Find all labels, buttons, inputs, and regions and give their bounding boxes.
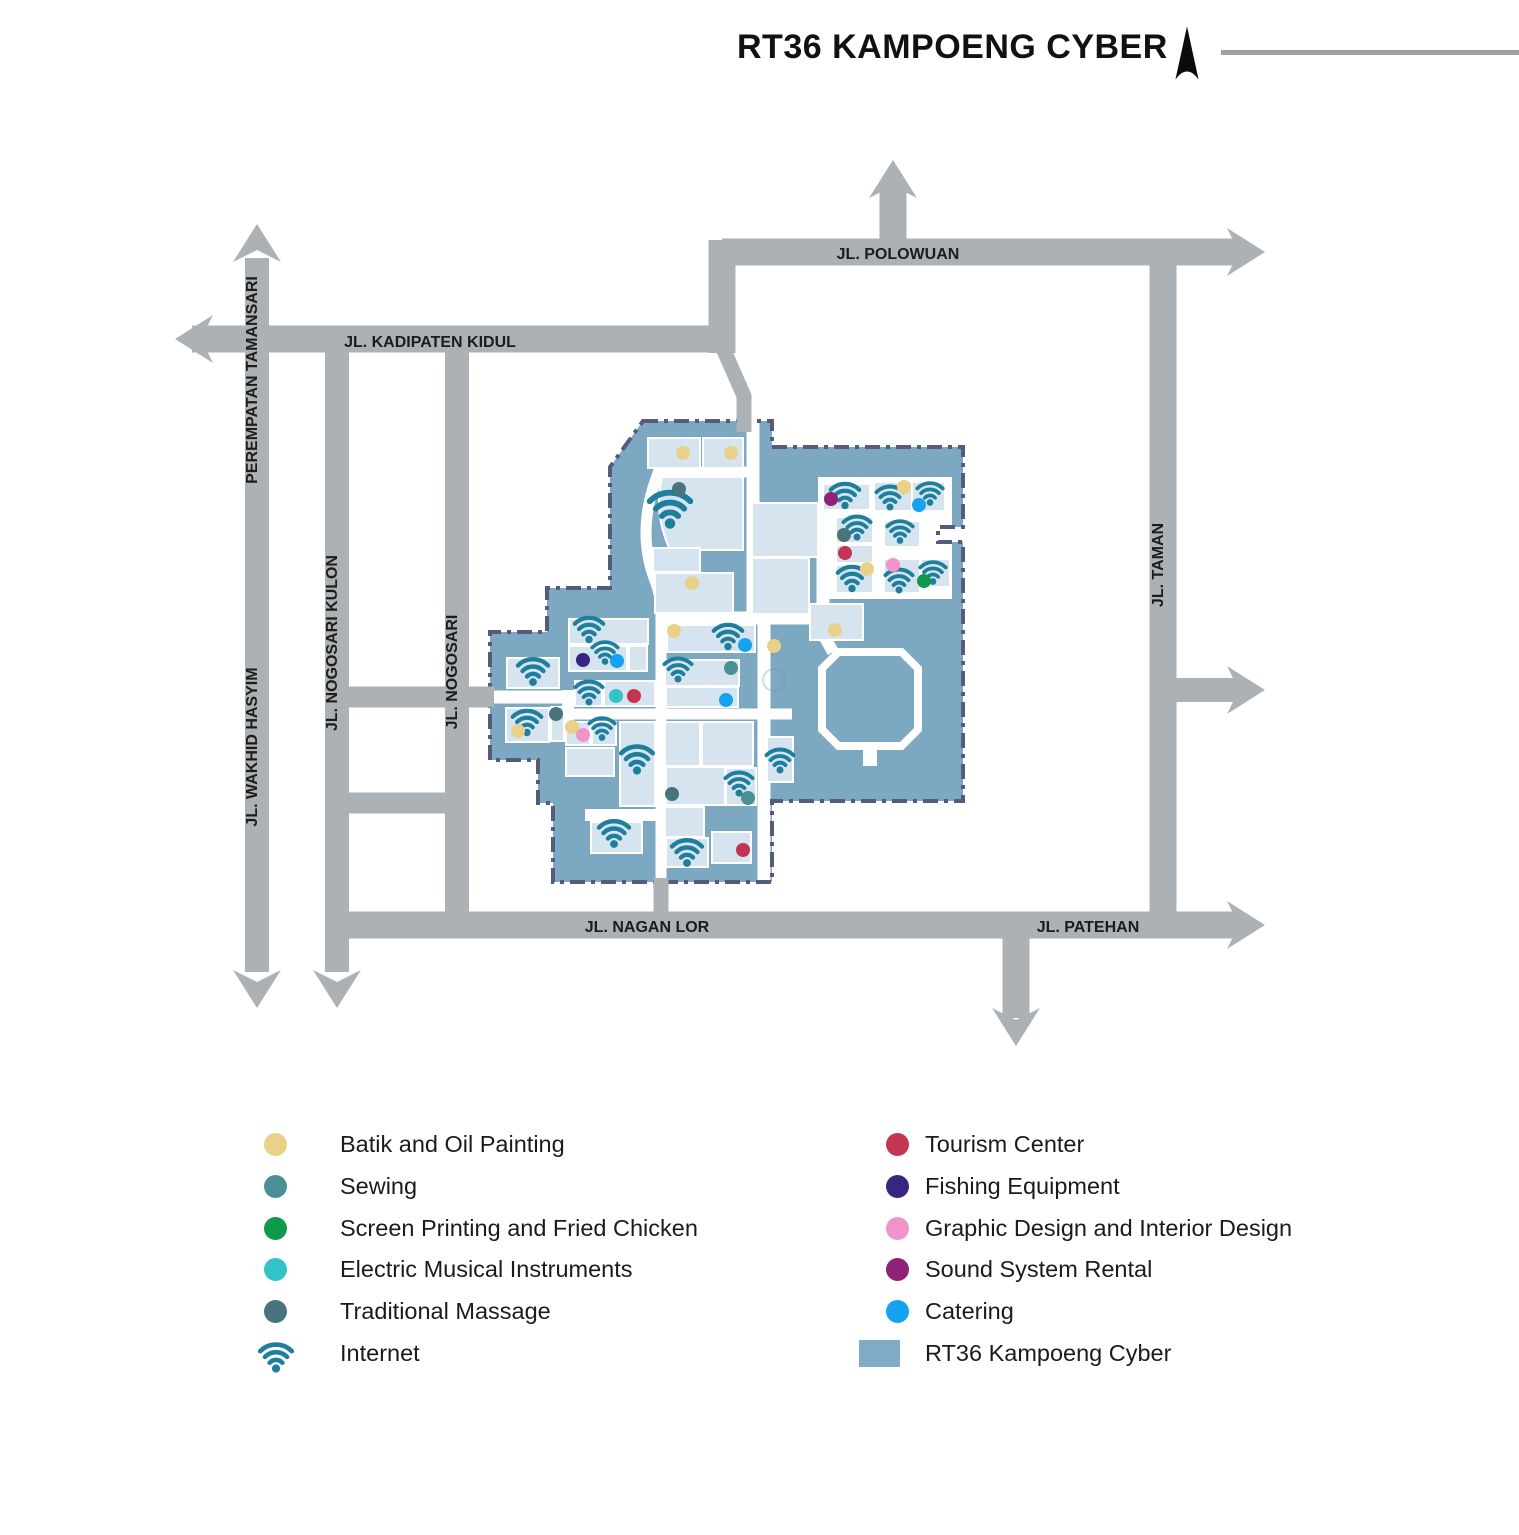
dot-graphic-design	[576, 728, 590, 742]
legend-right-column: Tourism CenterFishing EquipmentGraphic D…	[886, 1124, 1292, 1374]
dot-catering	[610, 654, 624, 668]
road-arrow-down-icon	[313, 970, 361, 1008]
road-label-nagan-lor: JL. NAGAN LOR	[585, 919, 710, 936]
dot-massage	[665, 787, 679, 801]
building-36	[665, 807, 704, 837]
dot-massage	[672, 482, 686, 496]
dot-batik	[676, 446, 690, 460]
legend-swatch-sewing	[264, 1175, 287, 1198]
road-arrow-down-icon	[233, 970, 281, 1008]
legend-wifi-icon	[264, 1342, 287, 1365]
legend-label-electric-music: Electric Musical Instruments	[340, 1256, 633, 1283]
road-label-taman: JL. TAMAN	[1150, 523, 1167, 607]
dot-batik	[685, 576, 699, 590]
dot-tourism	[838, 546, 852, 560]
legend-label-internet: Internet	[340, 1340, 420, 1367]
building-21	[629, 646, 647, 671]
dot-batik	[860, 562, 874, 576]
dot-fishing	[576, 653, 590, 667]
dot-sewing	[724, 661, 738, 675]
legend-swatch-tourism	[886, 1133, 909, 1156]
legend-item-electric-music: Electric Musical Instruments	[264, 1249, 698, 1291]
building-16	[569, 619, 648, 644]
legend-item-screen-printing: Screen Printing and Fried Chicken	[264, 1207, 698, 1249]
dot-batik	[511, 724, 525, 738]
building-32	[665, 722, 700, 766]
dot-catering	[738, 638, 752, 652]
legend-left-column: Batik and Oil PaintingSewingScreen Print…	[264, 1124, 698, 1374]
dot-massage	[837, 528, 851, 542]
legend-label-batik: Batik and Oil Painting	[340, 1131, 565, 1158]
road-label-kadipaten-kidul: JL. KADIPATEN KIDUL	[344, 334, 516, 351]
dot-graphic-design	[886, 558, 900, 572]
kampoeng-layer	[490, 421, 963, 882]
legend-swatch-graphic-design	[886, 1217, 909, 1240]
building-0	[648, 438, 700, 468]
legend-swatch-fishing	[886, 1175, 909, 1198]
legend-item-catering: Catering	[886, 1291, 1292, 1333]
legend-label-area: RT36 Kampoeng Cyber	[925, 1340, 1171, 1367]
map-poster: RT36 KAMPOENG CYBER PEREMPATAN TAMANSARI…	[0, 0, 1519, 1535]
octagon-block-inner	[826, 656, 914, 742]
legend-item-area: RT36 Kampoeng Cyber	[886, 1332, 1292, 1374]
legend-label-tourism: Tourism Center	[925, 1131, 1084, 1158]
building-4	[752, 503, 818, 557]
road-label-patehan: JL. PATEHAN	[1037, 919, 1140, 936]
legend-label-fishing: Fishing Equipment	[925, 1173, 1120, 1200]
legend-label-sewing: Sewing	[340, 1173, 417, 1200]
legend-swatch-massage	[264, 1300, 287, 1323]
road-kampoeng-access-north	[722, 346, 744, 432]
dot-batik	[724, 446, 738, 460]
building-33	[702, 722, 753, 766]
legend-item-graphic-design: Graphic Design and Interior Design	[886, 1207, 1292, 1249]
road-arrow-up-icon	[233, 224, 281, 262]
legend-item-fishing: Fishing Equipment	[886, 1166, 1292, 1208]
legend-label-sound-system: Sound System Rental	[925, 1256, 1152, 1283]
road-label-perempatan-tamansari: PEREMPATAN TAMANSARI	[244, 276, 261, 484]
legend-label-massage: Traditional Massage	[340, 1298, 551, 1325]
legend-item-internet: Internet	[264, 1332, 698, 1374]
building-29	[566, 748, 614, 776]
road-label-nogosari: JL. NOGOSARI	[444, 615, 461, 730]
dot-batik	[828, 623, 842, 637]
road-label-polowuan: JL. POLOWUAN	[837, 246, 960, 263]
dot-batik	[667, 624, 681, 638]
dot-massage	[549, 707, 563, 721]
legend-label-graphic-design: Graphic Design and Interior Design	[925, 1215, 1292, 1242]
legend-item-sound-system: Sound System Rental	[886, 1249, 1292, 1291]
legend-swatch-sound-system	[886, 1258, 909, 1281]
legend-wifi-glyph	[260, 1344, 292, 1372]
dot-sound-system	[824, 492, 838, 506]
legend-item-batik: Batik and Oil Painting	[264, 1124, 698, 1166]
dot-sewing	[741, 791, 755, 805]
legend-swatch-screen-printing	[264, 1217, 287, 1240]
road-label-nogosari-kulon: JL. NOGOSARI KULON	[324, 555, 341, 731]
road-label-wakhid-hasyim: JL. WAKHID HASYIM	[244, 667, 261, 826]
legend-label-catering: Catering	[925, 1298, 1014, 1325]
legend-swatch-electric-music	[264, 1258, 287, 1281]
legend-item-sewing: Sewing	[264, 1166, 698, 1208]
legend-item-tourism: Tourism Center	[886, 1124, 1292, 1166]
dot-tourism	[736, 843, 750, 857]
octagon-stub	[863, 748, 877, 766]
dot-electric-music	[609, 689, 623, 703]
dot-tourism	[627, 689, 641, 703]
legend-item-massage: Traditional Massage	[264, 1291, 698, 1333]
dot-batik	[897, 480, 911, 494]
dot-catering	[719, 693, 733, 707]
legend-swatch-area	[859, 1340, 900, 1367]
legend-label-screen-printing: Screen Printing and Fried Chicken	[340, 1215, 698, 1242]
dot-catering	[912, 498, 926, 512]
dot-screen-printing	[917, 574, 931, 588]
dot-batik	[767, 639, 781, 653]
building-5	[752, 558, 809, 614]
building-2	[653, 548, 700, 572]
legend-swatch-catering	[886, 1300, 909, 1323]
legend-swatch-batik	[264, 1133, 287, 1156]
